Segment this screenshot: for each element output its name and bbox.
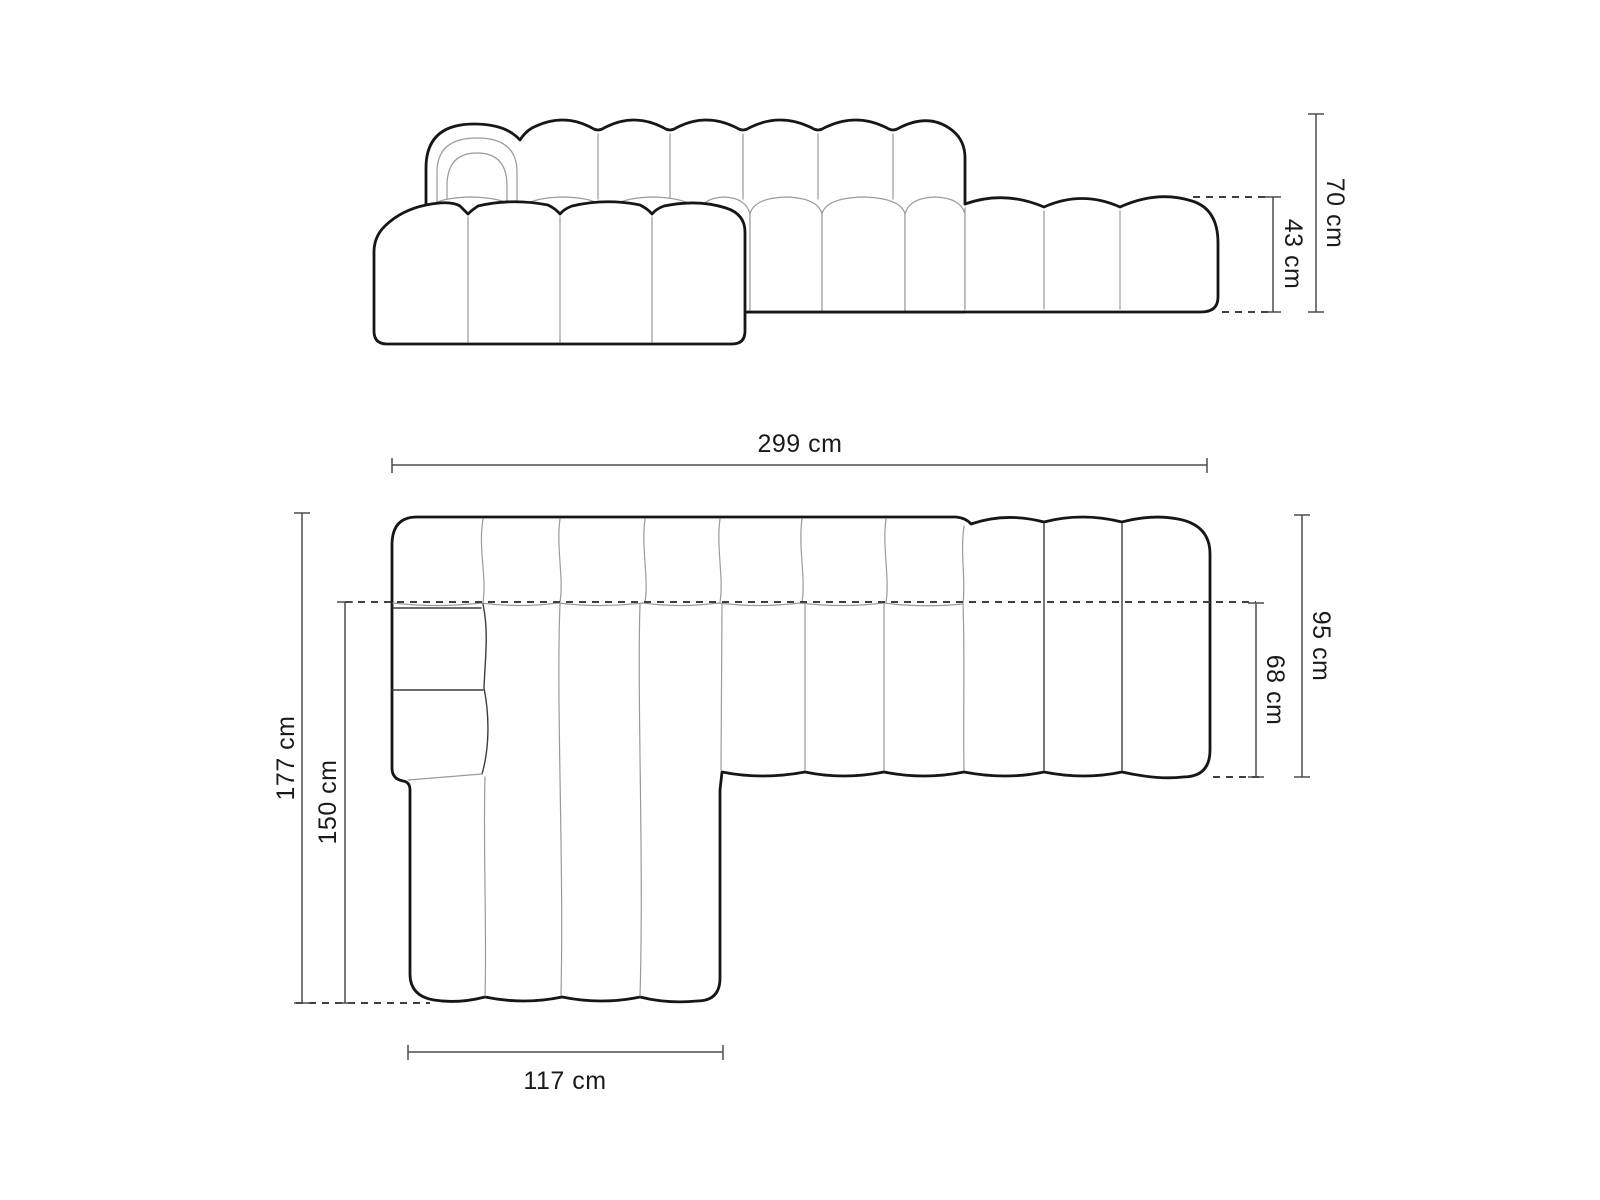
dim-label-seat-depth: 68 cm [1261, 655, 1289, 726]
dim-label-overall-depth: 177 cm [272, 716, 300, 801]
dimension-line-seat-height [1265, 197, 1281, 312]
dim-label-overall-height: 70 cm [1321, 178, 1349, 249]
dim-label-sofa-depth: 95 cm [1307, 611, 1335, 682]
sofa-dimension-diagram: 70 cm 43 cm [0, 0, 1600, 1200]
dimension-drawing-canvas: 70 cm 43 cm [0, 0, 1600, 1200]
dim-label-overall-width: 299 cm [758, 430, 843, 458]
top-plan-view: 299 cm 177 cm 150 cm 117 cm 95 cm 68 cm [272, 430, 1335, 1095]
front-seat-channel [750, 197, 822, 313]
dimension-line-chaise-width [408, 1045, 723, 1060]
dimension-line-overall-width [392, 458, 1207, 473]
dim-label-chaise-width: 117 cm [523, 1067, 606, 1095]
front-seat-channel [822, 197, 905, 313]
dim-label-chaise-length: 150 cm [314, 760, 342, 845]
front-elevation-view: 70 cm 43 cm [374, 114, 1349, 344]
dim-label-seat-height: 43 cm [1279, 219, 1307, 290]
front-seat-channel [905, 197, 965, 313]
plan-outline [392, 517, 1210, 1002]
front-right-section-fill [965, 197, 1218, 312]
